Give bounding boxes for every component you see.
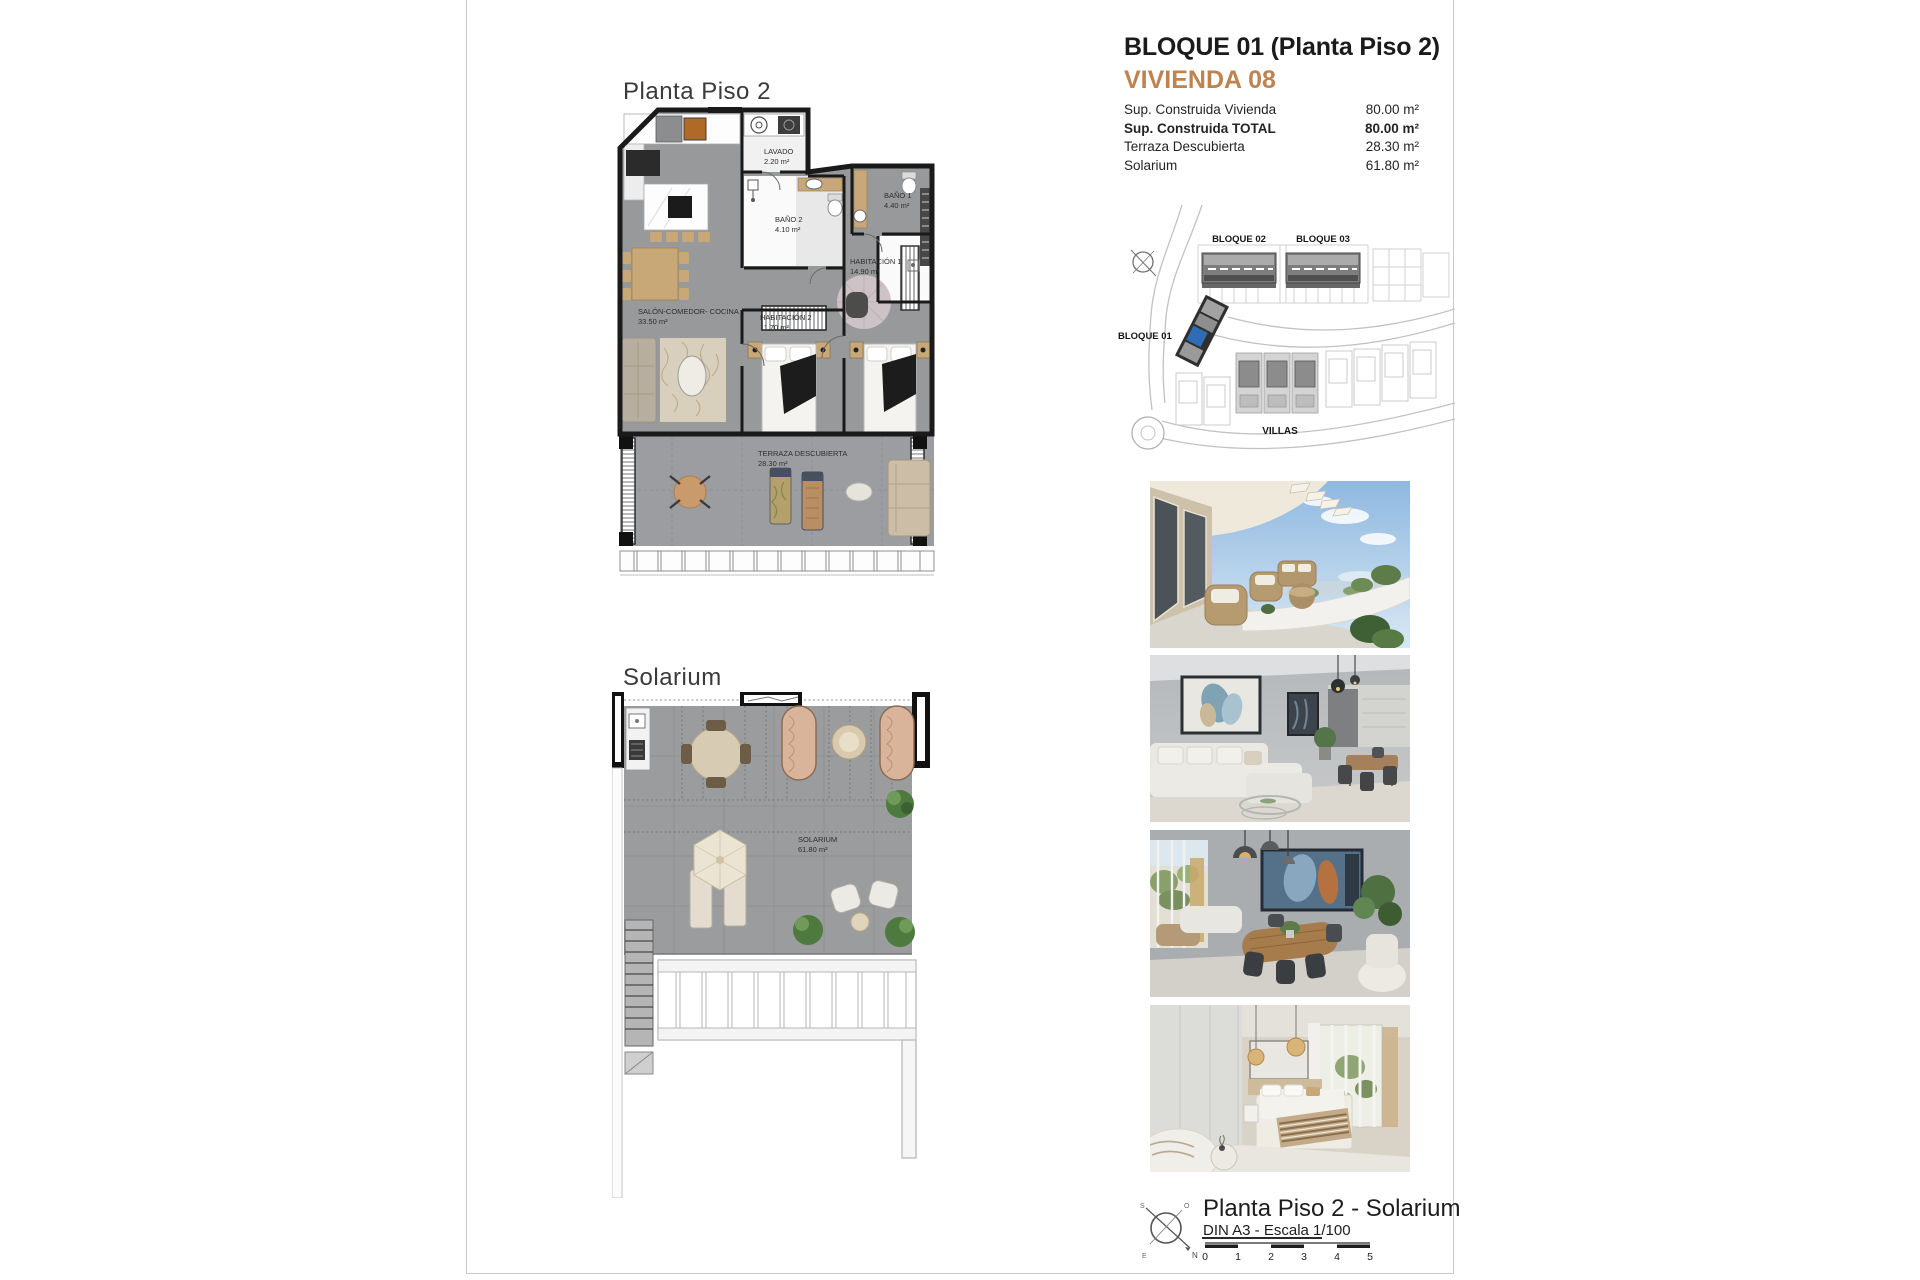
scale-tick-labels: 0 1 2 3 4 5 [1202,1251,1373,1263]
spec-value: 80.00 m² [1366,101,1419,120]
bloque01-building [1175,295,1229,367]
photo-dining-room [1150,830,1410,997]
room-label-lavado: LAVADO [764,147,793,156]
compass-e: E [1142,1253,1147,1260]
solarium-floor [624,706,912,954]
site-compass-icon [1131,250,1156,276]
photo-terrace [1150,481,1410,648]
room-area-solarium: 61.80 m² [798,845,828,854]
footer-compass-icon: N S O E [1138,1200,1202,1264]
room-label-bano1: BAÑO 1 [884,191,912,200]
sofa [1180,906,1242,933]
terrace-railing [620,551,934,575]
solarium-kitchenette [626,708,650,770]
spec-label: Terraza Descubierta [1124,138,1245,157]
spec-value: 61.80 m² [1366,157,1419,176]
spec-label: Sup. Construida TOTAL [1124,120,1276,139]
spec-row-terraza: Terraza Descubierta 28.30 m² [1124,138,1419,157]
page-title: BLOQUE 01 (Planta Piso 2) [1124,33,1440,62]
room-area-bano2: 4.10 m² [775,225,801,234]
photo-bedroom [1150,1005,1410,1172]
spec-value: 28.30 m² [1366,138,1419,157]
spec-row-vivienda: Sup. Construida Vivienda 80.00 m² [1124,101,1419,120]
room-area-hab2: 11.70 m² [760,323,790,332]
spec-label: Sup. Construida Vivienda [1124,101,1276,120]
room-label-bano2: BAÑO 2 [775,215,803,224]
site-label-villas: VILLAS [1262,426,1298,437]
scale-tick-1: 1 [1235,1251,1241,1263]
compass-o: O [1184,1203,1190,1210]
floorplan-solarium: SOLARIUM 61.80 m² [612,692,956,1198]
room-label-hab1: HABITACIÓN 1 [850,257,902,266]
roundabout [1132,417,1164,449]
site-label-bloque01: BLOQUE 01 [1118,331,1173,342]
room-area-lavado: 2.20 m² [764,157,790,166]
spec-label: Solarium [1124,157,1177,176]
room-label-solarium: SOLARIUM [798,835,837,844]
footer-rule [1202,1237,1322,1239]
bed [1244,1085,1352,1149]
bloque02-building [1202,253,1276,288]
room-label-salon: SALÓN-COMEDOR- COCINA [638,307,739,316]
footer-title: Planta Piso 2 - Solarium [1203,1195,1460,1223]
plan1-title: Planta Piso 2 [623,78,771,106]
scale-tick-0: 0 [1202,1251,1208,1263]
photo-living-room [1150,655,1410,822]
compass-n: N [1192,1251,1198,1260]
room-area-terraza: 28.30 m² [758,459,788,468]
spec-row-total: Sup. Construida TOTAL 80.00 m² [1124,120,1419,139]
site-plan: BLOQUE 02 BLOQUE 03 BLOQUE 01 VILLAS [1118,205,1455,467]
room-label-hab2: HABITACIÓN 2 [760,313,812,322]
scale-tick-5: 5 [1367,1251,1373,1263]
plan2-title: Solarium [623,664,722,692]
villas-row [1236,353,1318,413]
scale-bar: 0 1 2 3 4 5 [1202,1240,1382,1264]
floorplan-planta-piso-2: LAVADO 2.20 m² BAÑO 2 4.10 m² BAÑO 1 4.4… [612,104,960,578]
living-area [622,338,726,422]
scale-tick-4: 4 [1334,1251,1340,1263]
spec-value: 80.00 m² [1365,120,1419,139]
pergola [658,960,916,1158]
room-area-hab1: 14.90 m² [850,267,880,276]
room-area-bano1: 4.40 m² [884,201,910,210]
staircase [625,920,653,1074]
room-label-terraza: TERRAZA DESCUBIERTA [758,449,847,458]
spec-table: Sup. Construida Vivienda 80.00 m² Sup. C… [1124,101,1419,175]
scale-tick-2: 2 [1268,1251,1274,1263]
room-area-salon: 33.50 m² [638,317,668,326]
site-label-bloque02: BLOQUE 02 [1212,234,1266,245]
unit-title: VIVIENDA 08 [1124,66,1276,95]
plan-sheet-page: Planta Piso 2 [0,0,1920,1280]
spec-row-solarium: Solarium 61.80 m² [1124,157,1419,176]
scale-tick-3: 3 [1301,1251,1307,1263]
compass-s: S [1140,1203,1145,1210]
site-label-bloque03: BLOQUE 03 [1296,234,1350,245]
bloque03-building [1286,253,1360,288]
wall-art-large [1262,850,1362,910]
